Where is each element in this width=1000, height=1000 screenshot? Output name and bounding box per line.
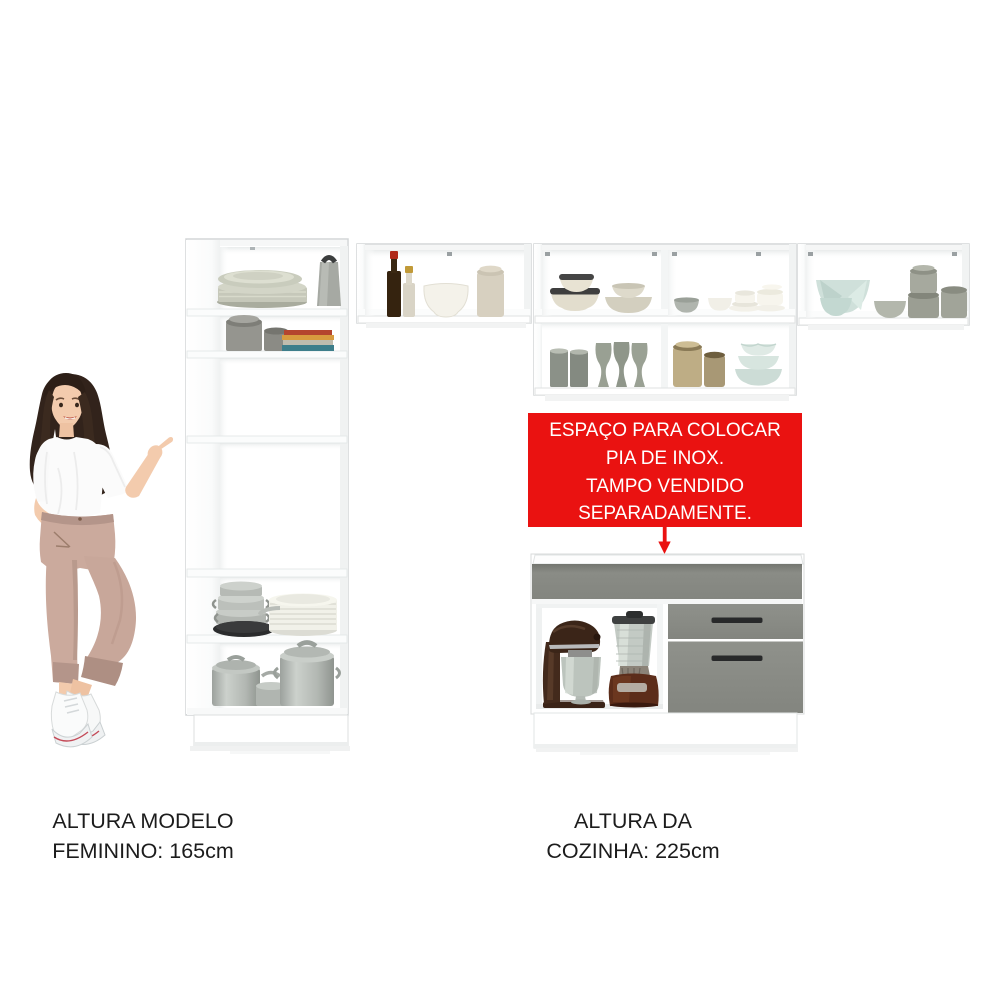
svg-text:ESPAÇO PARA COLOCAR: ESPAÇO PARA COLOCAR [549,420,781,441]
svg-text:ALTURA MODELO: ALTURA MODELO [52,809,233,833]
svg-text:TAMPO VENDIDO: TAMPO VENDIDO [586,476,744,497]
svg-text:FEMININO: 165cm: FEMININO: 165cm [52,839,234,863]
svg-text:SEPARADAMENTE.: SEPARADAMENTE. [578,503,752,524]
svg-text:PIA DE INOX.: PIA DE INOX. [606,448,724,469]
svg-text:COZINHA: 225cm: COZINHA: 225cm [546,839,719,863]
svg-text:ALTURA DA: ALTURA DA [574,809,693,833]
